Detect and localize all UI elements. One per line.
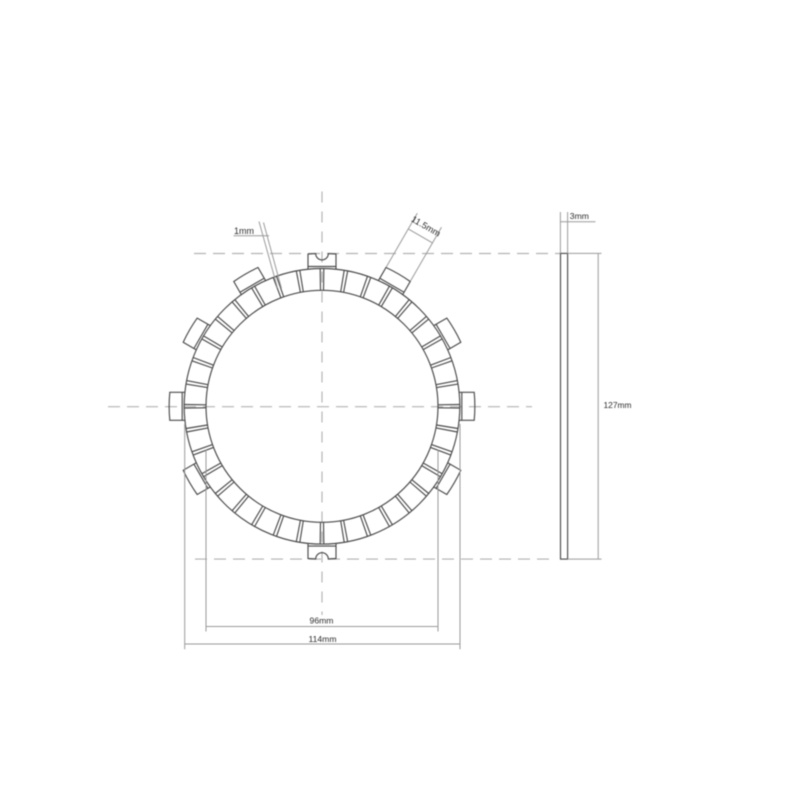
svg-text:1mm: 1mm [234, 226, 254, 236]
svg-text:11.5mm: 11.5mm [410, 214, 443, 239]
svg-text:96mm: 96mm [310, 616, 334, 626]
svg-text:127mm: 127mm [604, 400, 632, 410]
svg-text:3mm: 3mm [570, 211, 589, 221]
svg-text:114mm: 114mm [308, 634, 336, 644]
